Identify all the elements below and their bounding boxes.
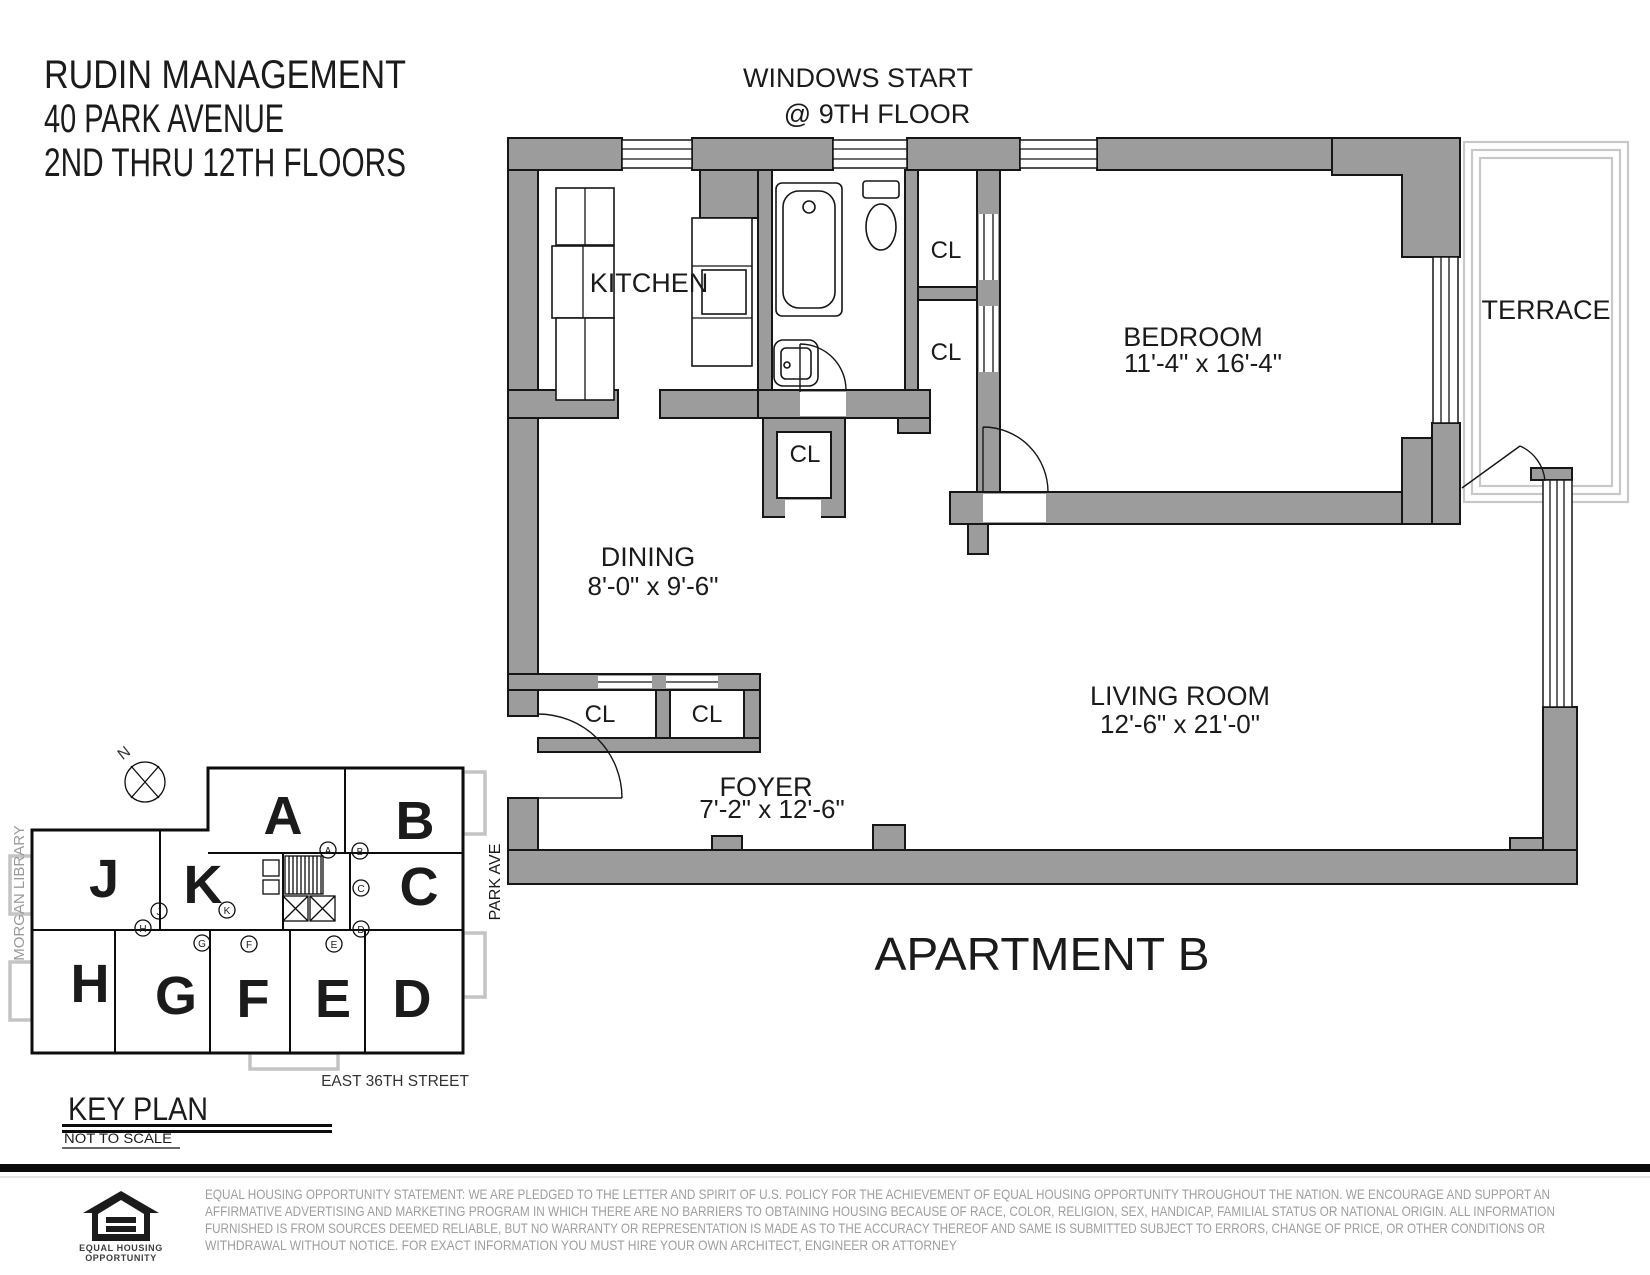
windows-note-line1: WINDOWS START xyxy=(743,63,973,93)
eho-logo-line1: EQUAL HOUSING xyxy=(79,1243,163,1253)
bathroom-fixtures xyxy=(774,181,899,386)
footer: EQUAL HOUSING OPPORTUNITY EQUAL HOUSING … xyxy=(0,1164,1650,1263)
east-36th-street-label: EAST 36TH STREET xyxy=(321,1073,469,1090)
windows-note: WINDOWS START @ 9TH FLOOR xyxy=(743,63,973,129)
foyer-closet-2-label: CL xyxy=(692,701,723,728)
bath-closet-1-label: CL xyxy=(931,237,962,264)
bath-closet-2-label: CL xyxy=(931,339,962,366)
footer-rule xyxy=(0,1164,1650,1172)
equal-housing-house-icon xyxy=(83,1191,159,1241)
unit-j-marker: J xyxy=(157,907,162,918)
title-block: RUDIN MANAGEMENT 40 PARK AVENUE 2ND THRU… xyxy=(44,53,406,185)
kitchen-window xyxy=(622,140,692,168)
unit-g-marker: G xyxy=(198,939,206,950)
eho-statement-line3: FURNISHED IS FROM SOURCES DEEMED RELIABL… xyxy=(205,1221,1545,1236)
foyer-dims: 7'-2" x 12'-6" xyxy=(699,794,844,824)
unit-k-marker: K xyxy=(224,906,231,917)
north-compass: N xyxy=(115,743,165,802)
morgan-library-label: MORGAN LIBRARY xyxy=(11,825,28,961)
unit-h-label: H xyxy=(71,954,110,1014)
floors-line: 2ND THRU 12TH FLOORS xyxy=(44,141,406,185)
unit-d-label: D xyxy=(393,969,432,1029)
north-label: N xyxy=(115,743,134,763)
sink xyxy=(774,340,818,386)
foyer-closet-1-label: CL xyxy=(585,701,616,728)
eho-statement-line1: EQUAL HOUSING OPPORTUNITY STATEMENT: WE … xyxy=(205,1187,1550,1202)
eho-statement-line4: WITHDRAWAL WITHOUT NOTICE. FOR EXACT INF… xyxy=(205,1238,957,1253)
unit-e-marker: E xyxy=(331,940,338,951)
unit-j-label: J xyxy=(89,849,119,909)
living-room-dims: 12'-6" x 21'-0" xyxy=(1100,709,1260,739)
bathroom-window xyxy=(833,140,907,168)
unit-g-label: G xyxy=(155,966,197,1026)
terrace-label: TERRACE xyxy=(1481,295,1610,325)
dining-label: DINING xyxy=(601,542,696,572)
floorplan-sheet: RUDIN MANAGEMENT 40 PARK AVENUE 2ND THRU… xyxy=(0,0,1650,1275)
key-plan-title: KEY PLAN xyxy=(68,1091,208,1127)
windows-note-line2: @ 9TH FLOOR xyxy=(784,99,970,129)
not-to-scale-label: NOT TO SCALE xyxy=(64,1131,172,1146)
eho-statement-line2: AFFIRMATIVE ADVERTISING AND MARKETING PR… xyxy=(205,1204,1555,1219)
unit-f-label: F xyxy=(237,969,270,1029)
unit-e-label: E xyxy=(315,969,351,1029)
kitchen-label: KITCHEN xyxy=(590,268,709,298)
dining-dims: 8'-0" x 9'-6" xyxy=(588,571,719,601)
unit-f-marker: F xyxy=(246,940,252,951)
toilet xyxy=(863,181,899,250)
management-title: RUDIN MANAGEMENT xyxy=(44,53,406,97)
unit-a-marker: A xyxy=(325,846,332,857)
eho-logo-line2: OPPORTUNITY xyxy=(85,1253,157,1263)
living-room-window xyxy=(1543,480,1572,707)
apartment-title: APARTMENT B xyxy=(875,928,1210,980)
floorplan-drawing: RUDIN MANAGEMENT 40 PARK AVENUE 2ND THRU… xyxy=(0,0,1650,1275)
bedroom-top-window xyxy=(1020,140,1097,168)
unit-b-label: B xyxy=(396,791,435,851)
bedroom-dims: 11'-4" x 16'-4" xyxy=(1124,348,1282,378)
unit-h-marker: H xyxy=(139,924,146,935)
park-ave-label: PARK AVE xyxy=(487,844,504,921)
unit-b-marker: B xyxy=(357,847,364,858)
bathtub xyxy=(776,183,842,316)
unit-c-marker: C xyxy=(357,884,364,895)
key-plan: N A B C D E F G H J K A B C D E F G H J … xyxy=(10,743,504,1148)
apartment-walls xyxy=(508,138,1577,884)
unit-c-label: C xyxy=(400,857,439,917)
unit-a-label: A xyxy=(264,786,303,846)
address-line: 40 PARK AVENUE xyxy=(44,97,284,141)
hall-closet-label: CL xyxy=(790,441,821,468)
eho-statement: EQUAL HOUSING OPPORTUNITY STATEMENT: WE … xyxy=(205,1187,1555,1253)
unit-d-marker: D xyxy=(357,925,364,936)
living-room-label: LIVING ROOM xyxy=(1090,681,1270,711)
bedroom-terrace-window xyxy=(1433,257,1458,423)
unit-k-label: K xyxy=(184,855,223,915)
